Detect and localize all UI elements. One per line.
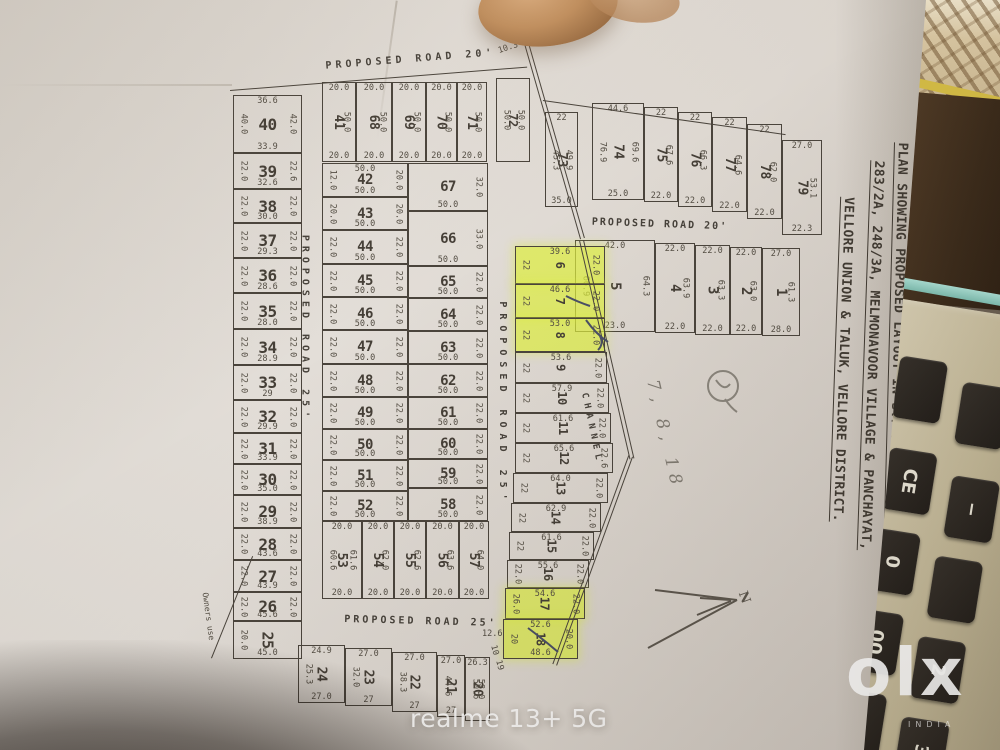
plot-dimension: 39.6 <box>550 248 570 257</box>
plot-60: 6050.022.0 <box>408 429 488 459</box>
plot-dimension: 50.0 <box>438 321 458 330</box>
plot-number: 79 <box>756 169 849 207</box>
plot-dimension: 50.0 <box>502 110 511 130</box>
plot-dimension: 22.0 <box>593 357 602 377</box>
plot-dimension: 28.0 <box>257 319 277 328</box>
plot-dimension: 22.0 <box>685 197 705 206</box>
plot-dimension: 20.0 <box>329 152 349 161</box>
plot-dimension: 22.0 <box>719 202 739 211</box>
plot-dimension: 22.0 <box>239 534 248 554</box>
plot-dimension: 22 <box>519 483 528 493</box>
plot-dimension: 20.0 <box>394 170 403 190</box>
plot-dimension: 64.0 <box>475 550 484 570</box>
plot-47: 4750.022.022.0 <box>322 330 408 364</box>
plot-dimension: 22.0 <box>239 230 248 250</box>
plot-dimension: 22.0 <box>651 192 671 201</box>
corner-shadow <box>0 640 580 750</box>
plot-dimension: 22.0 <box>394 270 403 290</box>
plot-65: 6550.022.0 <box>408 266 488 298</box>
plot-dimension: 22.0 <box>239 265 248 285</box>
calc-key <box>891 355 948 424</box>
plot-dimension: 29.3 <box>257 248 277 257</box>
plot-dimension: 42.0 <box>288 114 297 134</box>
plot-dimension: 22.0 <box>665 245 685 254</box>
plot-dimension: 22.0 <box>474 304 483 324</box>
plot-dimension: 50.0 <box>438 419 458 428</box>
plot-59: 5950.022.0 <box>408 459 488 488</box>
calc-key-−: − <box>943 475 1000 544</box>
plot-dimension: 50.0 <box>355 511 375 520</box>
plot-dimension: 22.0 <box>288 301 297 321</box>
plot-dimension: 20.0 <box>462 84 482 93</box>
plot-dimension: 20.0 <box>328 203 337 223</box>
plot-dimension: 22.0 <box>474 494 483 514</box>
plot-33: 332922.022.0 <box>233 365 302 400</box>
plot-dimension: 54.6 <box>535 590 555 599</box>
plot-dimension: 22.0 <box>328 465 337 485</box>
plot-dimension: 50.0 <box>438 256 458 265</box>
plot-50: 5050.022.022.0 <box>322 429 408 460</box>
plot-dimension: 22.0 <box>474 463 483 483</box>
plot-dimension: 20.0 <box>399 84 419 93</box>
plot-dimension: 29 <box>262 390 272 399</box>
plot-dimension: 22.0 <box>591 255 600 275</box>
plot-dimension: 50.0 <box>355 481 375 490</box>
plot-dimension: 22.0 <box>394 496 403 516</box>
plot-dimension: 33.9 <box>257 143 277 152</box>
plot-dimension: 50.0 <box>438 449 458 458</box>
plot-dimension: 22.0 <box>394 337 403 357</box>
plot-dimension: 22.0 <box>665 323 685 332</box>
plot-dimension: 22.0 <box>288 438 297 458</box>
plot-dimension: 22 <box>521 393 530 403</box>
plot-dimension: 36.6 <box>257 97 277 106</box>
plot-66: 6650.033.0 <box>408 211 488 266</box>
plot-dimension: 22.0 <box>474 370 483 390</box>
plot-dimension: 60.6 <box>328 550 337 570</box>
plot-dimension: 42.0 <box>605 242 625 251</box>
plot-dimension: 32.6 <box>257 179 277 188</box>
plot-dimension: 22 <box>517 512 526 522</box>
plot-dimension: 22.0 <box>239 161 248 181</box>
plot-dimension: 50.0 <box>355 450 375 459</box>
plot-51: 5150.022.022.0 <box>322 460 408 491</box>
plot-67: 6750.032.0 <box>408 163 488 211</box>
plot-dimension: 22.0 <box>580 536 589 556</box>
plot-dimension: 20.0 <box>432 523 452 532</box>
plot-dimension: 22.0 <box>328 370 337 390</box>
plot-dimension: 20.0 <box>368 523 388 532</box>
plot-dimension: 76.9 <box>598 141 607 161</box>
plot-64: 6450.022.0 <box>408 298 488 331</box>
plot-57: 5720.020.064.0 <box>459 521 489 599</box>
plot-dimension: 50.0 <box>438 288 458 297</box>
plot-dimension: 22.0 <box>513 564 522 584</box>
plot-dimension: 50.0 <box>438 478 458 487</box>
plot-dimension: 23.0 <box>605 322 625 331</box>
plot-43: 4350.020.020.0 <box>322 197 408 230</box>
plot-dimension: 20.0 <box>332 523 352 532</box>
plot-dimension: 50.0 <box>355 187 375 196</box>
plot-dimension: 28.9 <box>257 355 277 364</box>
plot-dimension: 50.0 <box>355 220 375 229</box>
plot-49: 4950.022.022.0 <box>322 397 408 429</box>
plot-dimension: 22.0 <box>288 265 297 285</box>
plot-dimension: 27.0 <box>771 250 791 259</box>
plot-dimension: 22.0 <box>328 337 337 357</box>
plot-39: 3932.622.022.6 <box>233 153 302 189</box>
road-label-1: PROPOSED ROAD 20' <box>585 216 735 232</box>
plot-dimension: 20.0 <box>400 589 420 598</box>
calc-key-label: − <box>937 481 1000 538</box>
plot-dimension: 61.3 <box>786 282 795 302</box>
plot-dimension: 22.0 <box>702 325 722 334</box>
plot-36: 3628.622.022.0 <box>233 258 302 293</box>
plot-dimension: 53.1 <box>808 177 817 197</box>
plot-dimension: 22.0 <box>587 507 596 527</box>
plot-dimension: 22.0 <box>328 403 337 423</box>
plot-dimension: 22.0 <box>328 303 337 323</box>
plot-38: 3830.022.022.0 <box>233 189 302 223</box>
plot-dimension: 22.0 <box>288 566 297 586</box>
plot-dimension: 22.0 <box>288 372 297 392</box>
plot-dimension: 22.0 <box>474 403 483 423</box>
plot-dimension: 22.0 <box>328 237 337 257</box>
plot-dimension: 50.0 <box>355 320 375 329</box>
plot-dimension: 32.0 <box>474 177 483 197</box>
plot-dimension: 52.6 <box>530 621 550 630</box>
plot-dimension: 22.0 <box>239 438 248 458</box>
plot-dimension: 22.0 <box>288 406 297 426</box>
plot-dimension: 22 <box>521 330 530 340</box>
plot-dimension: 28.6 <box>257 283 277 292</box>
plot-dimension: 22 <box>515 541 524 551</box>
plot-dimension: 22.0 <box>288 596 297 616</box>
plot-dimension: 22.0 <box>591 325 600 345</box>
plot-dimension: 22.0 <box>239 196 248 216</box>
plot-dimension: 20.0 <box>431 152 451 161</box>
plot-dimension: 50.0 <box>516 110 525 130</box>
plot-dimension: 22.3 <box>792 225 812 234</box>
plot-dimension: 20.0 <box>332 589 352 598</box>
plot-dimension: 22 <box>521 260 530 270</box>
plot-dimension: 20.0 <box>364 152 384 161</box>
plot-dimension: 22.0 <box>288 534 297 554</box>
plot-dimension: 22.0 <box>239 406 248 426</box>
plot-dimension: 22.0 <box>736 325 756 334</box>
plot-28: 2843.622.022.0 <box>233 528 302 560</box>
plot-46: 4650.022.022.0 <box>322 297 408 330</box>
plot-dimension: 43.9 <box>257 582 277 591</box>
plot-number: 1 <box>738 274 824 310</box>
plot-dimension: 35.0 <box>257 485 277 494</box>
plot-79: 7927.022.353.1 <box>782 140 822 235</box>
plot-dimension: 22.0 <box>754 209 774 218</box>
plot-dimension: 43.6 <box>257 550 277 559</box>
dim-label: 12.6 <box>482 630 502 639</box>
plot-37: 3729.322.022.0 <box>233 223 302 258</box>
plot-52: 5250.022.022.0 <box>322 491 408 521</box>
plot-dimension: 22.0 <box>239 501 248 521</box>
plot-dimension: 22.0 <box>394 370 403 390</box>
road-label-4: PROPOSED ROAD 25' <box>497 251 508 556</box>
plot-dimension: 27.0 <box>792 142 812 151</box>
plot-dimension: 20.0 <box>464 523 484 532</box>
plot-dimension: 28.0 <box>771 326 791 335</box>
plot-dimension: 22.0 <box>594 478 603 498</box>
calc-key-label <box>948 387 1000 444</box>
plot-dimension: 20.0 <box>368 589 388 598</box>
plot-dimension: 22.0 <box>702 247 722 256</box>
plot-dimension: 40.0 <box>239 114 248 134</box>
plot-dimension: 22.0 <box>394 303 403 323</box>
plot-dimension: 22.0 <box>288 501 297 521</box>
calc-key <box>954 382 1000 451</box>
plot-dimension: 22.0 <box>239 337 248 357</box>
plot-dimension: 30.0 <box>257 213 277 222</box>
plot-62: 6250.022.0 <box>408 364 488 397</box>
plot-1: 127.028.061.3 <box>762 248 800 336</box>
road-label-2: PROPOSED ROAD 25' <box>326 614 516 630</box>
plot-dimension: 50.0 <box>355 254 375 263</box>
olx-logo-text: olx <box>846 634 966 711</box>
plot-dimension: 22 <box>521 362 530 372</box>
plot-dimension: 22.0 <box>394 237 403 257</box>
plot-dimension: 22.0 <box>288 196 297 216</box>
road-label-3: PROPOSED ROAD 25' <box>300 210 311 448</box>
plot-dimension: 33.9 <box>257 454 277 463</box>
plot-dimension: 20.0 <box>399 152 419 161</box>
plot-dimension: 22.0 <box>239 301 248 321</box>
plot-dimension: 22 <box>556 114 566 123</box>
plot-dimension: 22.0 <box>474 272 483 292</box>
plot-61: 6150.022.0 <box>408 397 488 429</box>
plot-dimension: 12.0 <box>328 170 337 190</box>
plot-dimension: 25.0 <box>608 190 628 199</box>
camera-watermark: realme 13+ 5G <box>410 704 608 733</box>
plot-dimension: 22.0 <box>394 465 403 485</box>
plot-dimension: 22 <box>521 423 530 433</box>
plot-dimension: 20.0 <box>394 203 403 223</box>
plot-dimension: 22.0 <box>595 388 604 408</box>
plot-dimension: 50.0 <box>355 165 375 174</box>
plot-dimension: 22.0 <box>328 270 337 290</box>
plot-dimension: 20.0 <box>400 523 420 532</box>
plot-dimension: 20.0 <box>462 152 482 161</box>
plot-44: 4450.022.022.0 <box>322 230 408 264</box>
plot-63: 6350.022.0 <box>408 331 488 364</box>
plot-dimension: 22 <box>521 296 530 306</box>
olx-logo-sub: INDIA <box>908 720 955 729</box>
plot-35: 3528.022.022.0 <box>233 293 302 329</box>
plot-dimension: 50.0 <box>438 354 458 363</box>
plot-dimension: 20.0 <box>329 84 349 93</box>
plot-32: 3229.922.022.0 <box>233 400 302 433</box>
plot-dimension: 50.0 <box>355 354 375 363</box>
plot-dimension: 22.0 <box>288 469 297 489</box>
plot-dimension: 22.0 <box>736 249 756 258</box>
plot-dimension: 22.0 <box>288 337 297 357</box>
plot-dimension: 22.0 <box>239 596 248 616</box>
plot-dimension: 20.0 <box>364 84 384 93</box>
olx-logo: olx INDIA <box>846 634 966 711</box>
plot-dimension: 22.0 <box>239 372 248 392</box>
plot-dimension: 22.0 <box>288 230 297 250</box>
plot-dimension: 20.0 <box>431 84 451 93</box>
plot-45: 4550.022.022.0 <box>322 264 408 297</box>
plot-dimension: 26.0 <box>511 593 520 613</box>
plot-dimension: 22.0 <box>239 469 248 489</box>
plot-dimension: 50.0 <box>438 201 458 210</box>
plot-dimension: 22.6 <box>288 161 297 181</box>
plot-dimension: 33.0 <box>474 228 483 248</box>
plot-31: 3133.922.022.0 <box>233 433 302 464</box>
plot-dimension: 29.9 <box>257 423 277 432</box>
plot-29: 2938.922.022.0 <box>233 495 302 528</box>
plot-dimension: 20.0 <box>432 589 452 598</box>
plot-dimension: 50.0 <box>438 511 458 520</box>
plot-dimension: 50.0 <box>355 419 375 428</box>
plot-40: 4036.633.940.042.0 <box>233 95 302 153</box>
plot-dimension: 50.0 <box>355 287 375 296</box>
plot-dimension: 38.9 <box>257 518 277 527</box>
calc-key-label <box>921 561 990 618</box>
plot-dimension: 50.0 <box>355 387 375 396</box>
plot-dimension: 22.0 <box>328 496 337 516</box>
plot-dimension: 22.0 <box>328 434 337 454</box>
calc-key <box>926 555 983 624</box>
plot-30: 3035.022.022.0 <box>233 464 302 495</box>
plot-dimension: 22.0 <box>394 403 403 423</box>
plot-34: 3428.922.022.0 <box>233 329 302 365</box>
plot-dimension: 22.0 <box>474 434 483 454</box>
plot-dimension: 22 <box>521 453 530 463</box>
plot-dimension: 20.0 <box>464 589 484 598</box>
plot-42: 4250.050.012.020.0 <box>322 163 408 197</box>
plot-58: 5850.022.0 <box>408 488 488 521</box>
photo-of-layout-plan: CE−00023 4036.633.940.042.03932.622.022.… <box>0 0 1000 750</box>
plot-48: 4850.022.022.0 <box>322 364 408 397</box>
plot-dimension: 50.0 <box>438 387 458 396</box>
plot-dimension: 22.0 <box>394 434 403 454</box>
plot-dimension: 22.0 <box>474 337 483 357</box>
